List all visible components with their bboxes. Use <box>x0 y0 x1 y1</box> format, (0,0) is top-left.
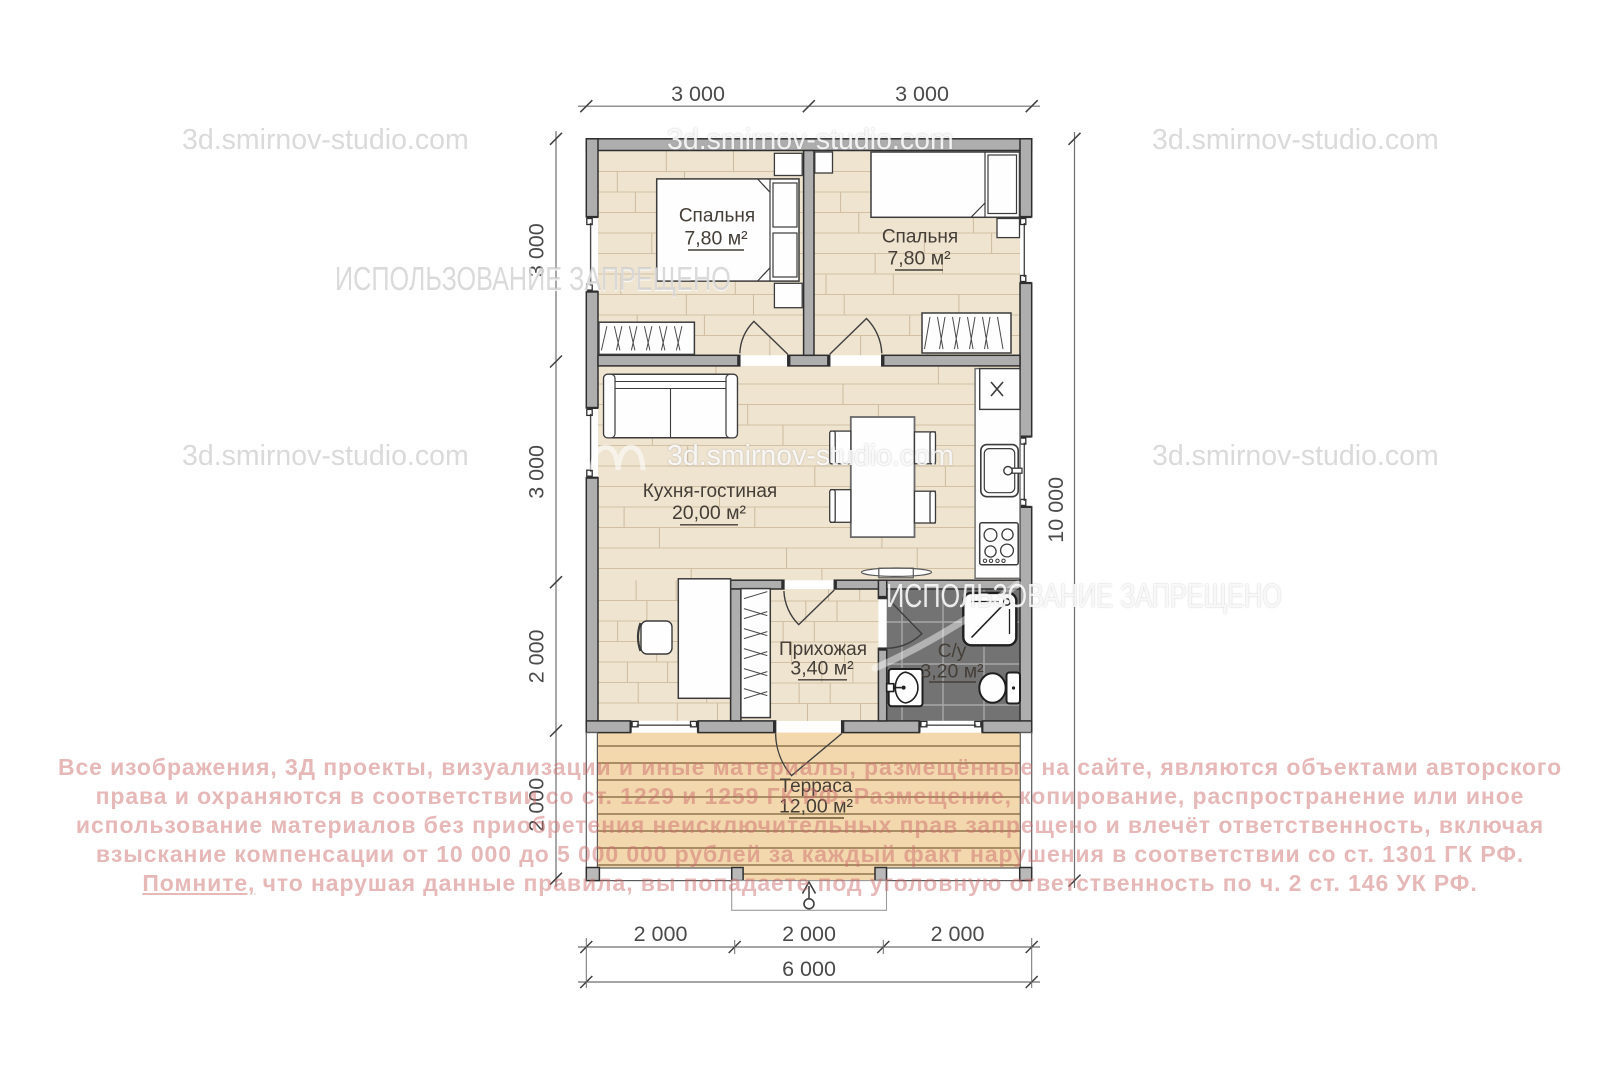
svg-text:3 000: 3 000 <box>671 82 725 106</box>
svg-text:С/у: С/у <box>938 641 967 662</box>
svg-text:2 000: 2 000 <box>782 922 836 946</box>
svg-text:2 000: 2 000 <box>931 922 985 946</box>
svg-text:20,00 м²: 20,00 м² <box>672 502 747 524</box>
svg-text:Кухня-гостиная: Кухня-гостиная <box>643 481 777 502</box>
svg-text:3 000: 3 000 <box>525 223 549 277</box>
svg-text:7,80 м²: 7,80 м² <box>887 248 951 270</box>
svg-text:2 000: 2 000 <box>525 629 549 683</box>
svg-text:3,20 м²: 3,20 м² <box>920 661 984 683</box>
svg-text:3 000: 3 000 <box>525 445 549 499</box>
svg-text:2 000: 2 000 <box>634 922 688 946</box>
svg-text:Спальня: Спальня <box>882 227 958 248</box>
svg-text:3 000: 3 000 <box>895 82 949 106</box>
svg-text:Спальня: Спальня <box>679 206 755 227</box>
svg-text:10 000: 10 000 <box>1044 477 1068 543</box>
svg-text:3,40 м²: 3,40 м² <box>790 658 854 680</box>
svg-text:6 000: 6 000 <box>782 957 836 981</box>
svg-text:7,80 м²: 7,80 м² <box>684 228 748 250</box>
